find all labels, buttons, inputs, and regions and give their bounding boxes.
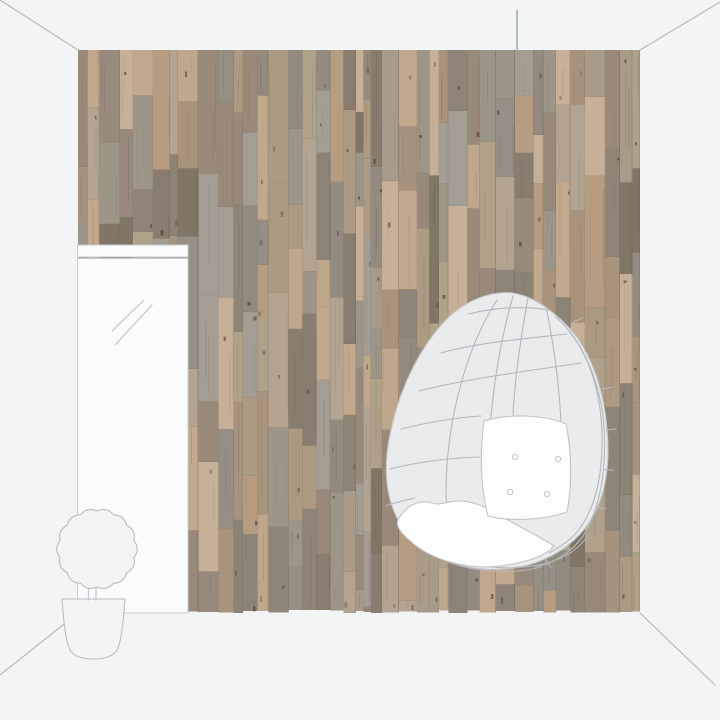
room-scene-svg bbox=[0, 0, 720, 720]
plant-pot bbox=[62, 599, 125, 659]
cushion-button-dot bbox=[507, 489, 512, 494]
cushion-button-dot bbox=[544, 491, 549, 496]
mirror-top-frame bbox=[78, 245, 189, 257]
plant-foliage bbox=[57, 509, 138, 588]
cushion-button-dot bbox=[512, 454, 517, 459]
product-visualization bbox=[0, 0, 720, 720]
cushion-button-dot bbox=[555, 456, 560, 461]
egg-chair-back-cushion bbox=[481, 416, 570, 519]
